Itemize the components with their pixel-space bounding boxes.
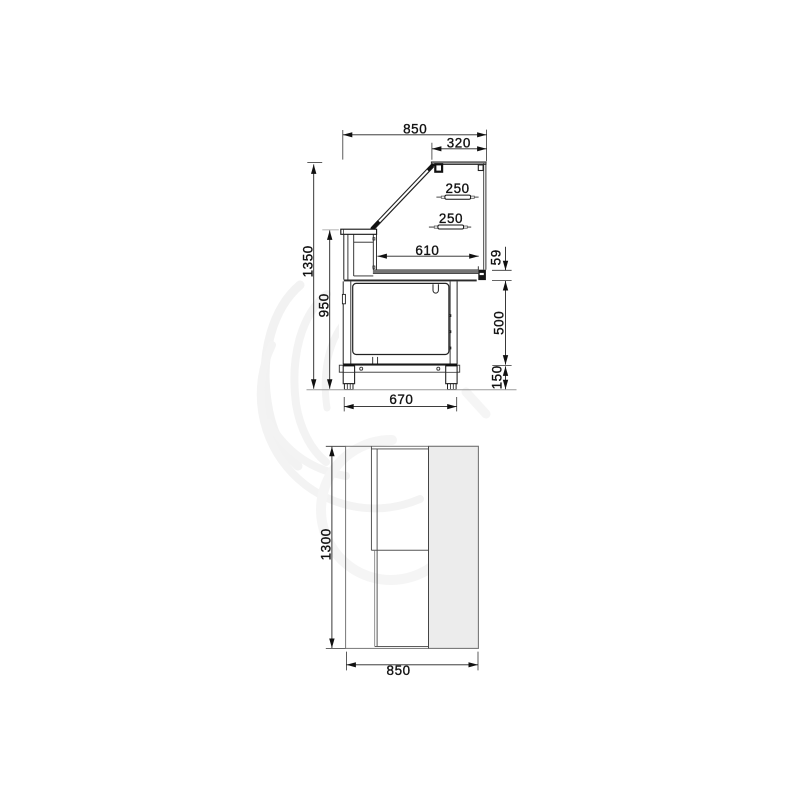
- svg-text:950: 950: [317, 293, 332, 317]
- svg-text:850: 850: [403, 122, 427, 137]
- svg-text:670: 670: [389, 392, 413, 407]
- svg-text:500: 500: [492, 311, 507, 335]
- svg-text:250: 250: [439, 211, 463, 226]
- svg-text:1350: 1350: [300, 245, 315, 277]
- svg-text:320: 320: [447, 136, 471, 151]
- svg-text:610: 610: [415, 243, 439, 258]
- svg-text:1300: 1300: [318, 528, 333, 560]
- svg-text:850: 850: [387, 663, 411, 678]
- svg-text:250: 250: [446, 181, 470, 196]
- svg-text:150: 150: [490, 365, 505, 389]
- svg-text:59: 59: [489, 249, 504, 265]
